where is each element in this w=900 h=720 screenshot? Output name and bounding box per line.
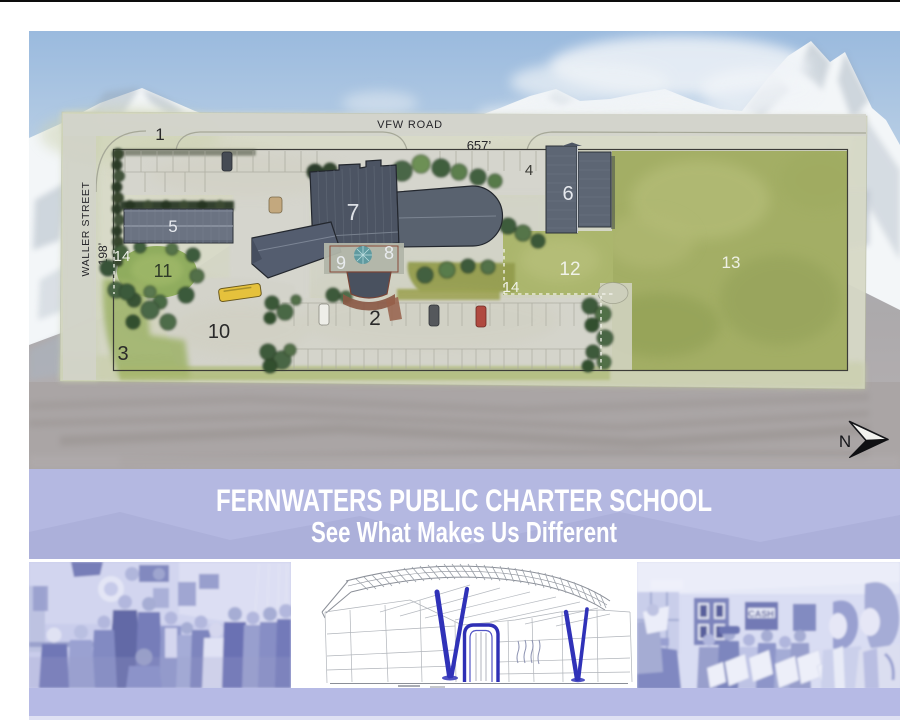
svg-text:1: 1	[155, 125, 164, 144]
svg-text:7: 7	[347, 199, 360, 225]
svg-text:8: 8	[384, 243, 394, 263]
svg-text:10: 10	[208, 321, 230, 343]
svg-text:13: 13	[722, 253, 741, 272]
svg-text:9: 9	[336, 253, 346, 273]
svg-text:FERNWATERS PUBLIC CHARTER SCHO: FERNWATERS PUBLIC CHARTER SCHOOL	[216, 482, 712, 518]
svg-text:5: 5	[168, 217, 177, 236]
svg-text:4: 4	[525, 162, 533, 179]
svg-text:11: 11	[154, 261, 173, 281]
svg-text:12: 12	[559, 259, 580, 280]
svg-text:14: 14	[114, 248, 131, 265]
svg-text:N: N	[839, 432, 851, 451]
svg-text:2: 2	[369, 307, 381, 330]
svg-text:3: 3	[117, 343, 128, 365]
svg-text:WALLER STREET: WALLER STREET	[80, 182, 92, 277]
svg-text:14: 14	[503, 279, 520, 296]
svg-text:See What Makes Us Different: See What Makes Us Different	[311, 517, 617, 549]
svg-text:6: 6	[562, 183, 573, 205]
svg-text:VFW ROAD: VFW ROAD	[377, 119, 443, 131]
